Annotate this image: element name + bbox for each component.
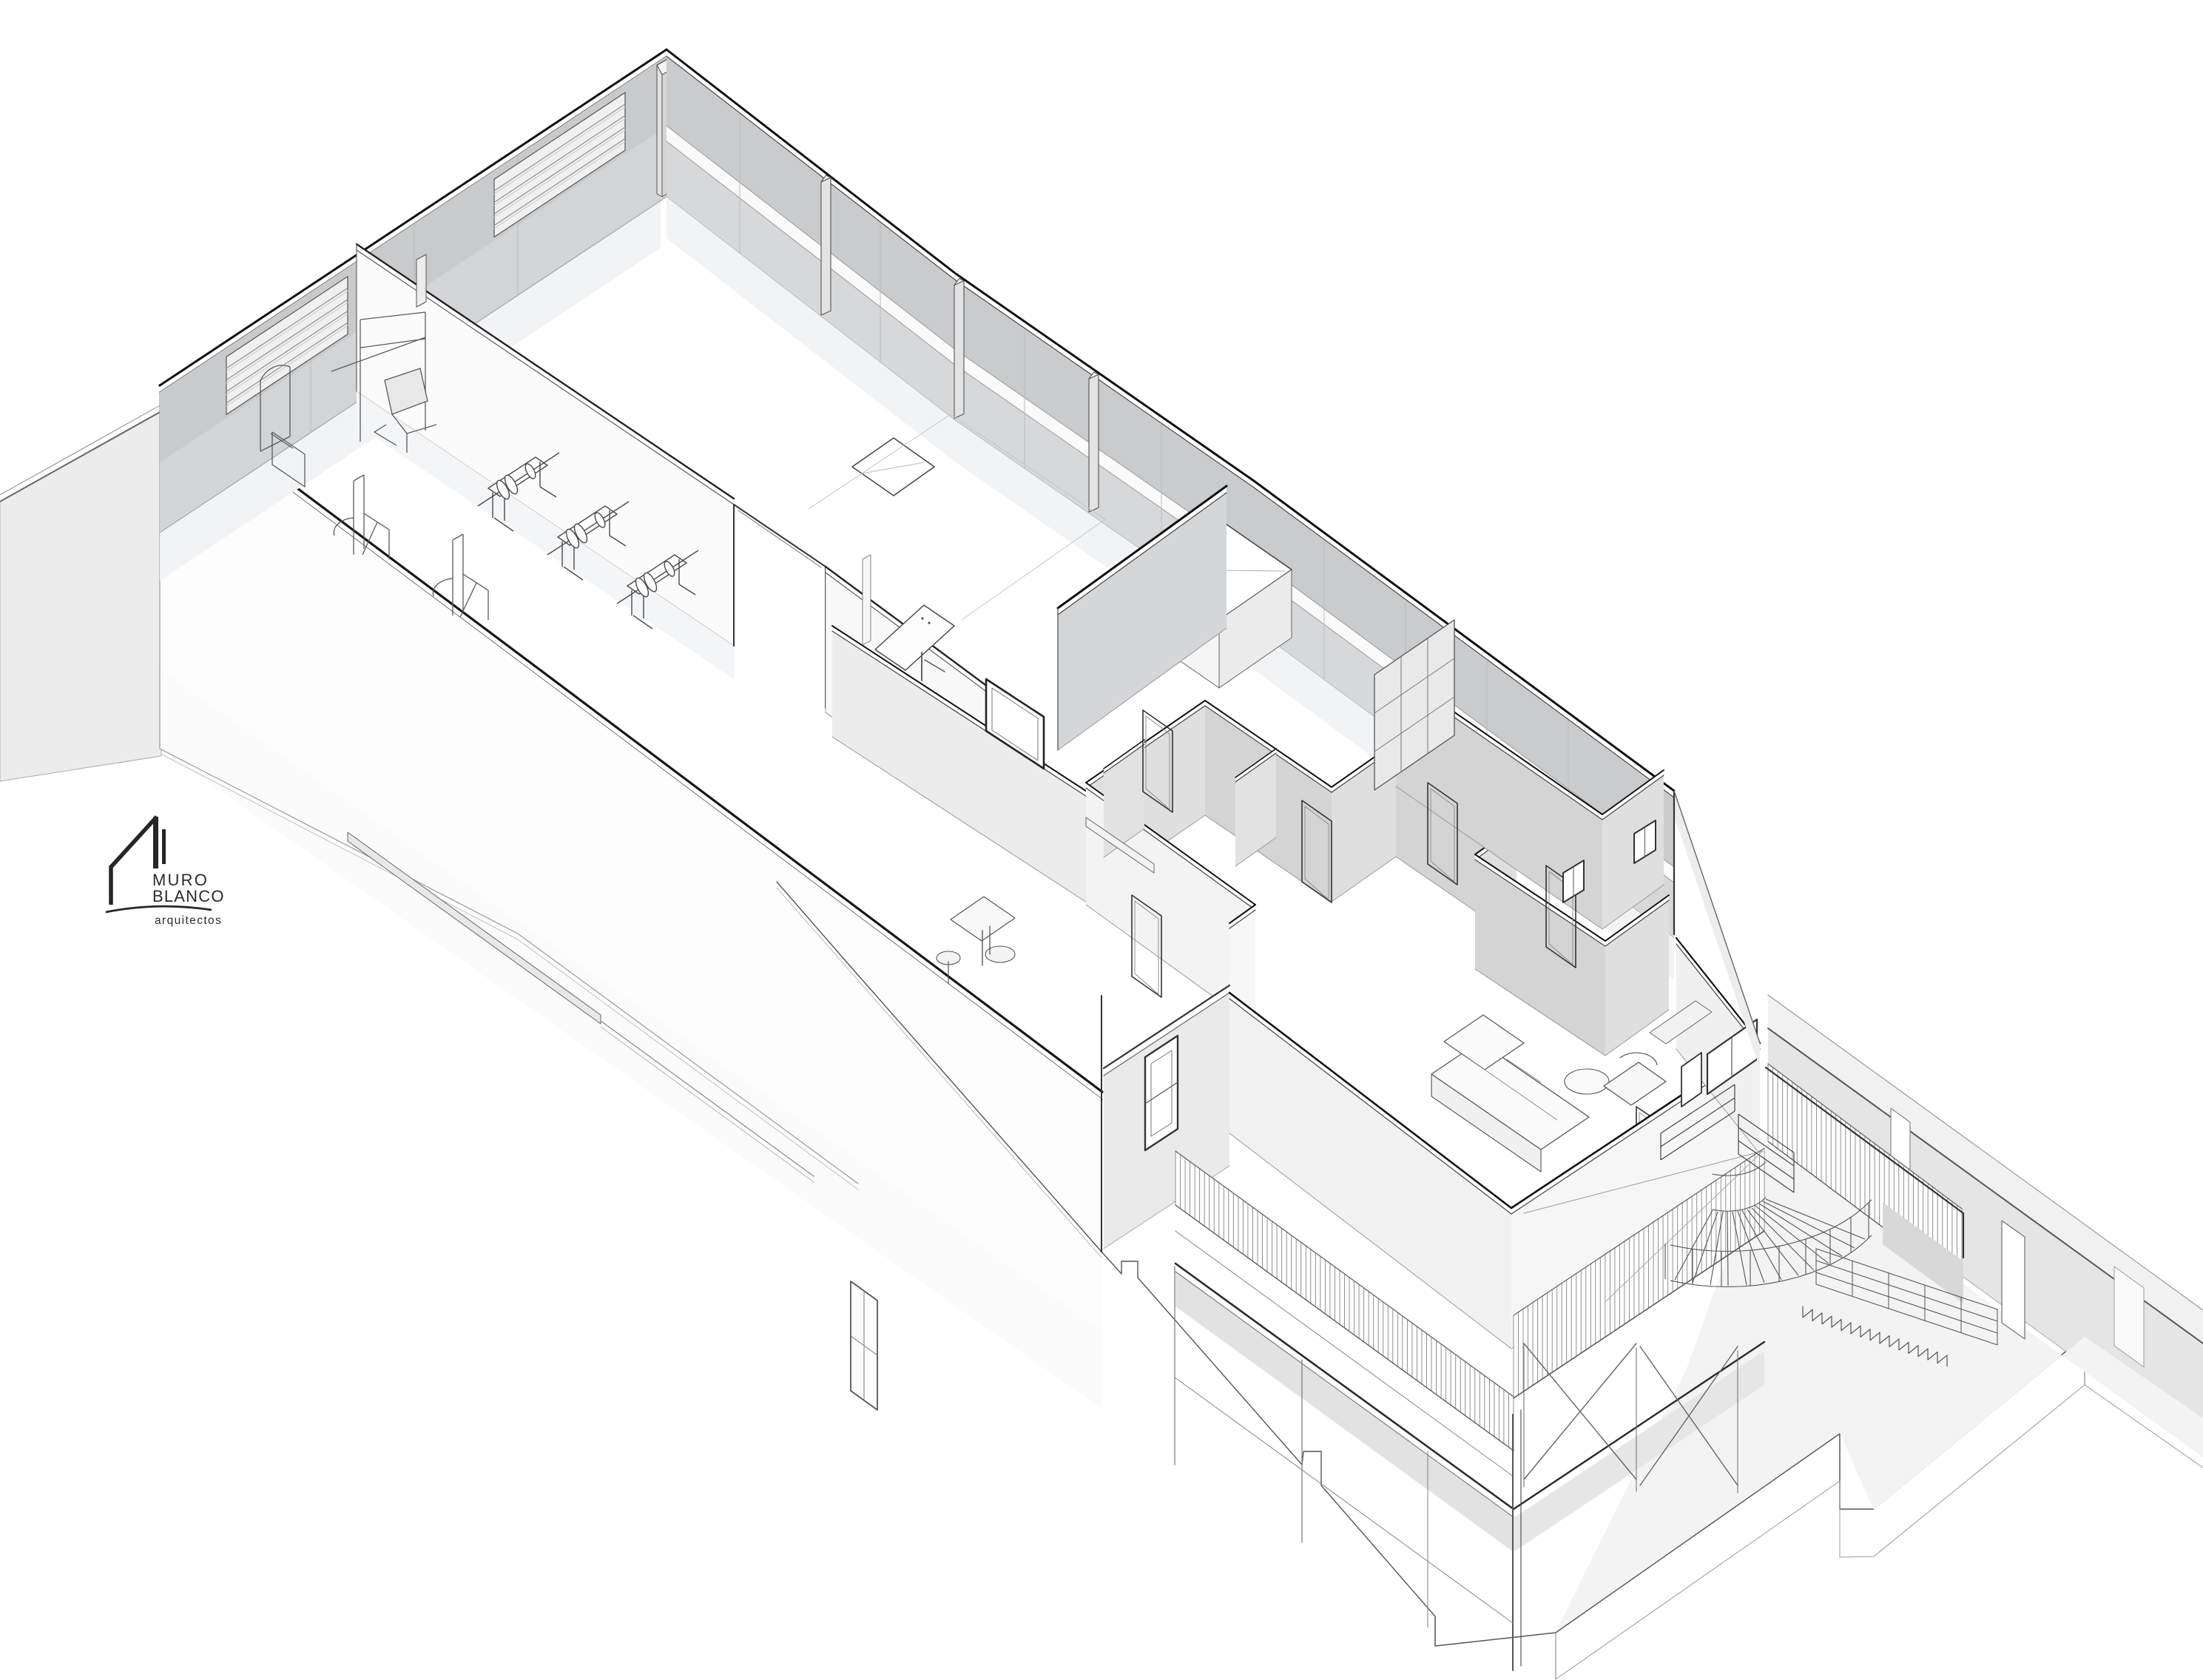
svg-text:BLANCO: BLANCO — [152, 887, 225, 905]
svg-text:arquitectos: arquitectos — [155, 914, 222, 927]
